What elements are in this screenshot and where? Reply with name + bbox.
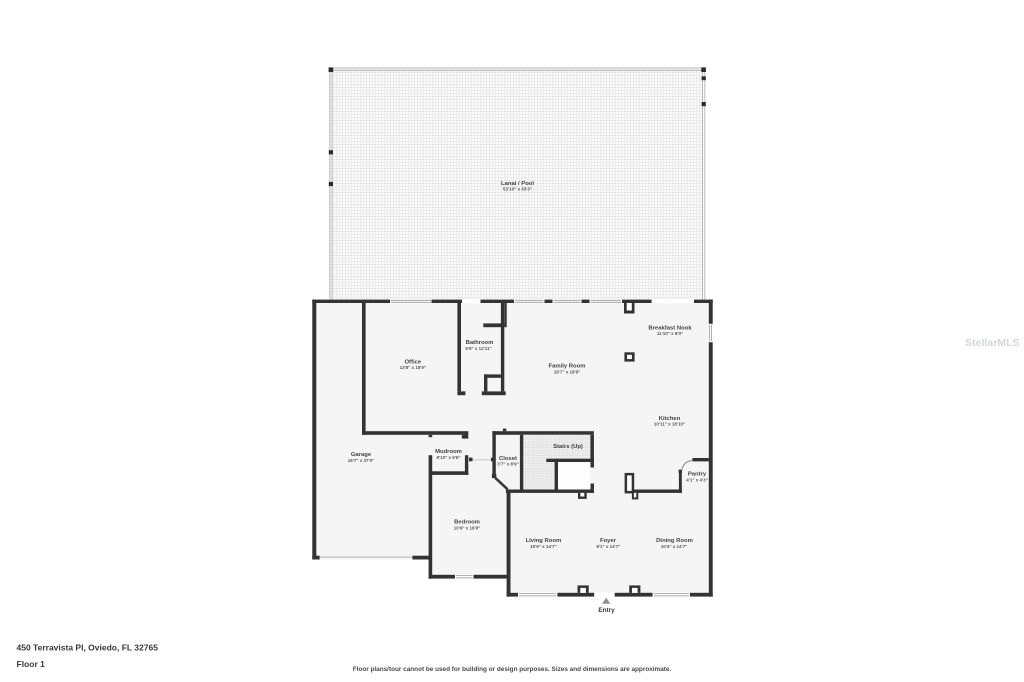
svg-text:Entry: Entry [598, 607, 615, 614]
svg-text:11'10" x 8'0": 11'10" x 8'0" [657, 331, 683, 336]
svg-text:10'9" x 16'8": 10'9" x 16'8" [454, 525, 480, 530]
svg-text:13'8" x 18'9": 13'8" x 18'9" [400, 365, 426, 370]
svg-text:53'10" x 33'3": 53'10" x 33'3" [503, 187, 532, 192]
svg-text:16'7" x 37'0": 16'7" x 37'0" [348, 458, 374, 463]
svg-text:3'7" x 8'9": 3'7" x 8'9" [497, 462, 518, 467]
svg-text:18'7" x 18'9": 18'7" x 18'9" [554, 369, 580, 374]
svg-text:10'9" x 14'7": 10'9" x 14'7" [530, 544, 556, 549]
svg-text:StellarMLS: StellarMLS [965, 338, 1020, 349]
svg-text:4'1" x 4'3": 4'1" x 4'3" [686, 478, 707, 483]
svg-text:10'4" x 14'7": 10'4" x 14'7" [661, 544, 687, 549]
svg-text:8'10" x 5'6": 8'10" x 5'6" [437, 455, 461, 460]
svg-text:Floor plans/tour cannot be use: Floor plans/tour cannot be used for buil… [353, 666, 672, 673]
svg-text:450 Terravista Pl, Oviedo, FL: 450 Terravista Pl, Oviedo, FL 32765 [17, 643, 159, 653]
svg-text:Floor 1: Floor 1 [17, 659, 46, 669]
svg-text:10'11" x 18'10": 10'11" x 18'10" [654, 422, 685, 427]
svg-text:Stairs (Up): Stairs (Up) [553, 444, 583, 450]
svg-text:5'9" x 12'11": 5'9" x 12'11" [465, 346, 491, 351]
svg-text:8'1" x 14'7": 8'1" x 14'7" [596, 544, 620, 549]
